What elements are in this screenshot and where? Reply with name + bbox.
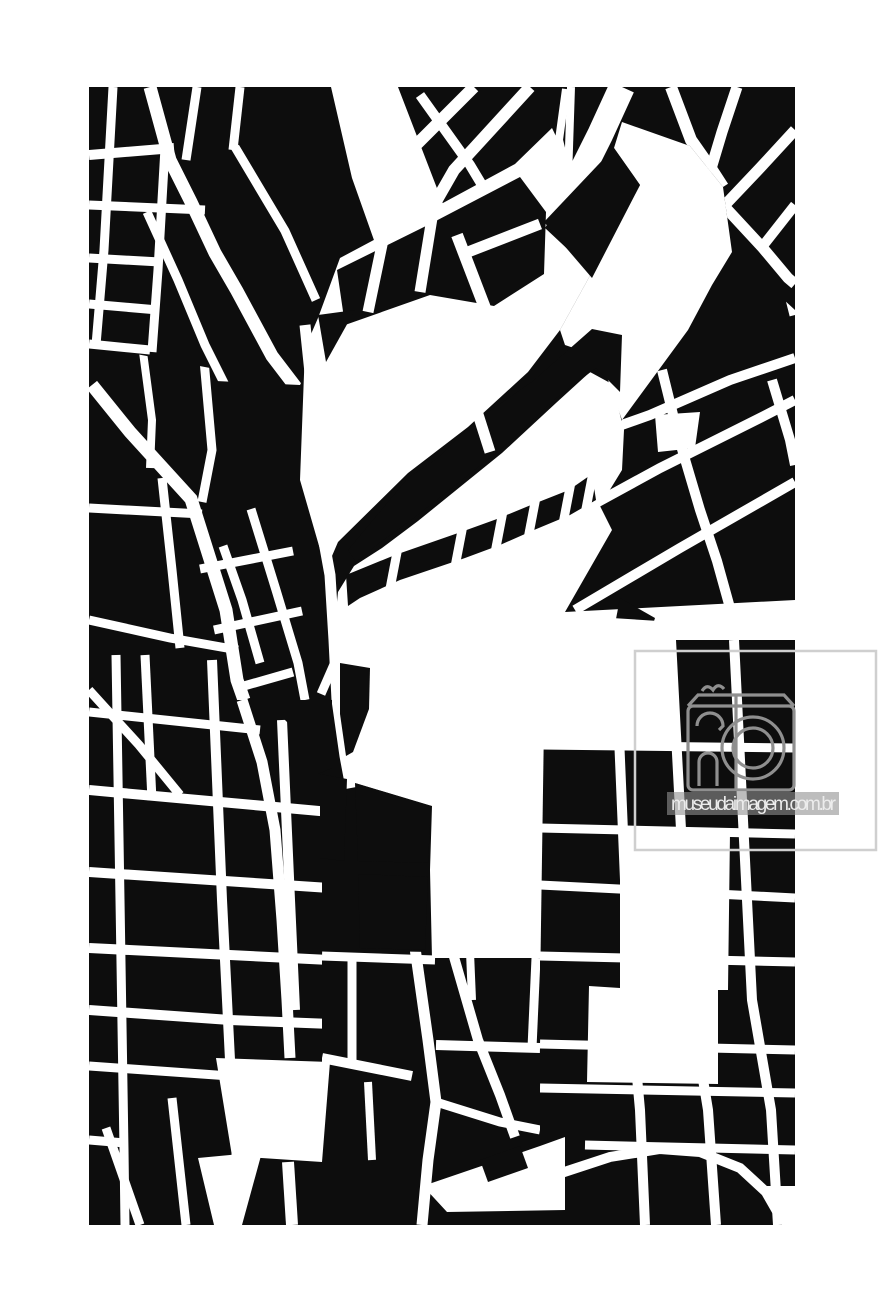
svg-text:museudaimagem.com.br: museudaimagem.com.br (671, 794, 837, 815)
